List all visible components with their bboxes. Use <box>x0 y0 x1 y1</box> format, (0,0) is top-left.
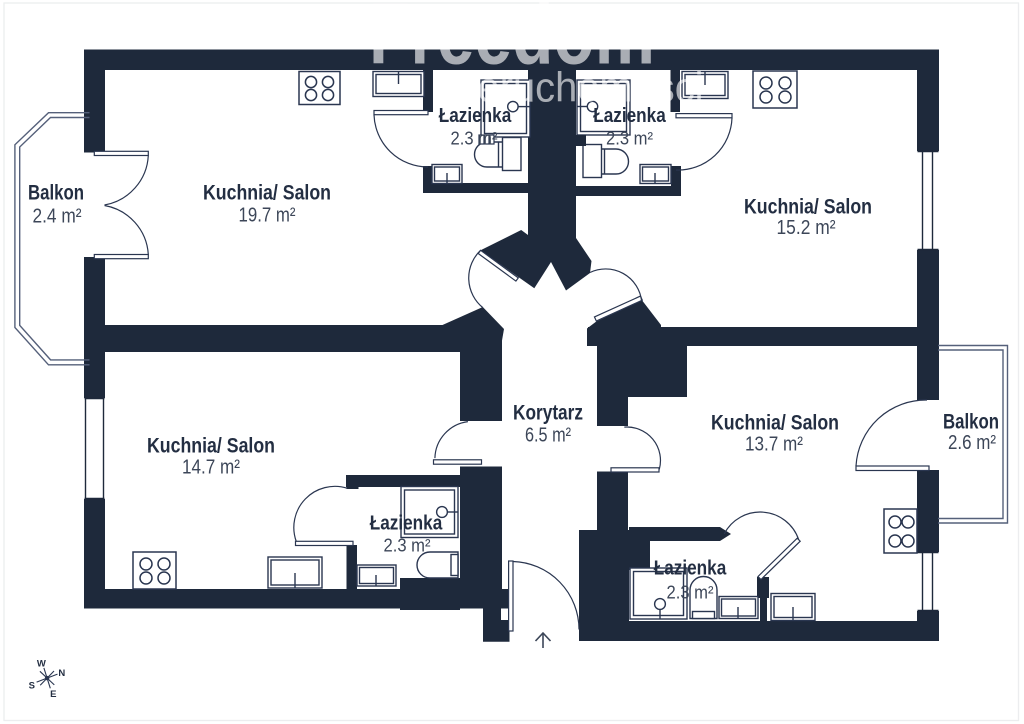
svg-text:Kuchnia/ Salon: Kuchnia/ Salon <box>147 434 275 458</box>
svg-text:Kuchnia/ Salon: Kuchnia/ Salon <box>203 181 331 205</box>
svg-text:2.4 m²: 2.4 m² <box>33 206 82 228</box>
svg-text:2.3 m²: 2.3 m² <box>384 536 431 556</box>
svg-text:N: N <box>58 668 65 679</box>
svg-text:19.7 m²: 19.7 m² <box>239 205 296 227</box>
svg-text:S: S <box>29 680 35 691</box>
svg-text:15.2 m²: 15.2 m² <box>777 217 836 239</box>
svg-text:2.3 m²: 2.3 m² <box>606 129 653 149</box>
svg-text:6.5 m²: 6.5 m² <box>525 425 571 447</box>
svg-text:Kuchnia/ Salon: Kuchnia/ Salon <box>711 411 839 435</box>
svg-text:14.7 m²: 14.7 m² <box>182 457 240 479</box>
svg-text:Balkon: Balkon <box>28 181 84 205</box>
svg-text:Łazienka: Łazienka <box>654 558 727 580</box>
svg-text:Balkon: Balkon <box>943 410 999 434</box>
svg-text:Łazienka: Łazienka <box>593 105 666 127</box>
svg-text:2.3 m²: 2.3 m² <box>667 583 714 603</box>
svg-text:2.3 m²: 2.3 m² <box>451 129 498 149</box>
svg-text:2.6 m²: 2.6 m² <box>948 432 996 454</box>
svg-text:W: W <box>37 659 46 670</box>
svg-text:nieruchomości: nieruchomości <box>447 64 704 111</box>
svg-text:Kuchnia/ Salon: Kuchnia/ Salon <box>744 195 872 219</box>
svg-text:13.7 m²: 13.7 m² <box>745 434 803 456</box>
svg-text:Łazienka: Łazienka <box>370 513 443 535</box>
svg-text:E: E <box>50 689 56 700</box>
svg-text:Łazienka: Łazienka <box>439 105 512 127</box>
svg-text:Korytarz: Korytarz <box>513 401 583 425</box>
